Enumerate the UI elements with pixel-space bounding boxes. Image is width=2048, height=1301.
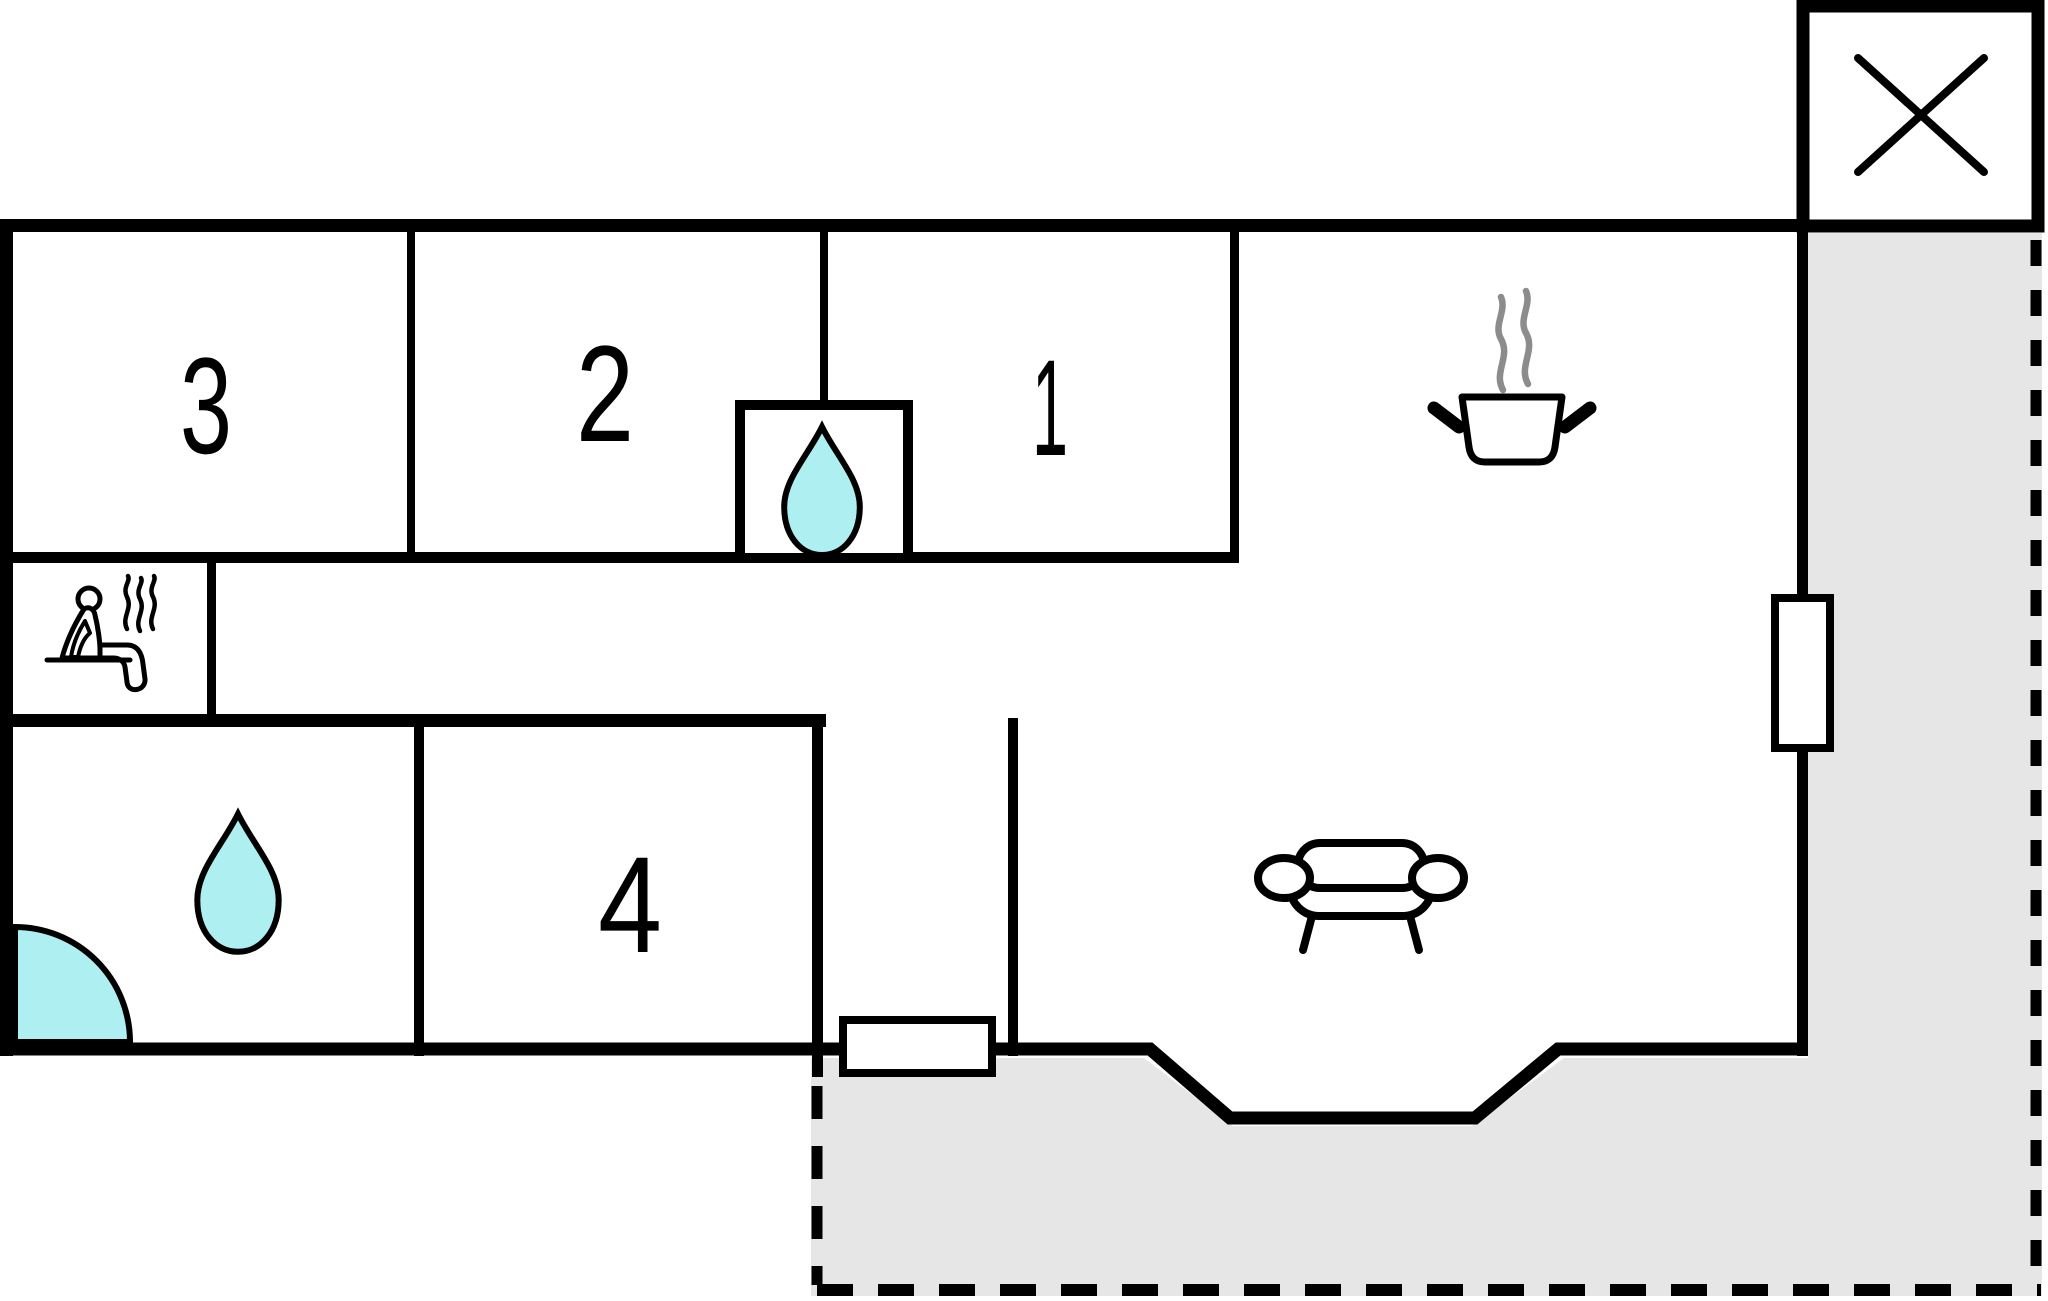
wall-below-rooms-123 <box>0 552 1239 563</box>
window-bottom-wall <box>843 1020 992 1073</box>
wall-room2-room1 <box>820 226 828 410</box>
room4-number: 4 <box>598 829 662 982</box>
chimney-symbol <box>1803 6 2038 226</box>
outer-wall-top <box>0 219 1808 232</box>
room3-number: 3 <box>180 330 232 483</box>
wall-room1-right <box>1230 226 1239 563</box>
room2-number: 2 <box>576 318 634 471</box>
window-right-wall <box>1775 598 1830 748</box>
wall-corridor-bottom <box>0 714 826 727</box>
floor-plan-drawing: 3 2 1 4 <box>0 0 2048 1301</box>
wall-sauna-right <box>207 557 216 719</box>
room1-number: 1 <box>1032 332 1068 485</box>
wall-livingroom-partition <box>1008 718 1018 1056</box>
sofa-back <box>1298 843 1424 888</box>
floor-plan-page: 3 2 1 4 <box>0 0 2048 1301</box>
sofa-armrest-left <box>1258 858 1310 898</box>
wall-room3-room2 <box>407 226 415 563</box>
wall-bathroom-room4 <box>414 714 424 1056</box>
pot-body <box>1462 397 1562 462</box>
wall-room4-right <box>812 714 823 1077</box>
shower-cell <box>740 405 908 558</box>
sofa-armrest-right <box>1412 858 1464 898</box>
outer-wall-left <box>0 219 13 1056</box>
